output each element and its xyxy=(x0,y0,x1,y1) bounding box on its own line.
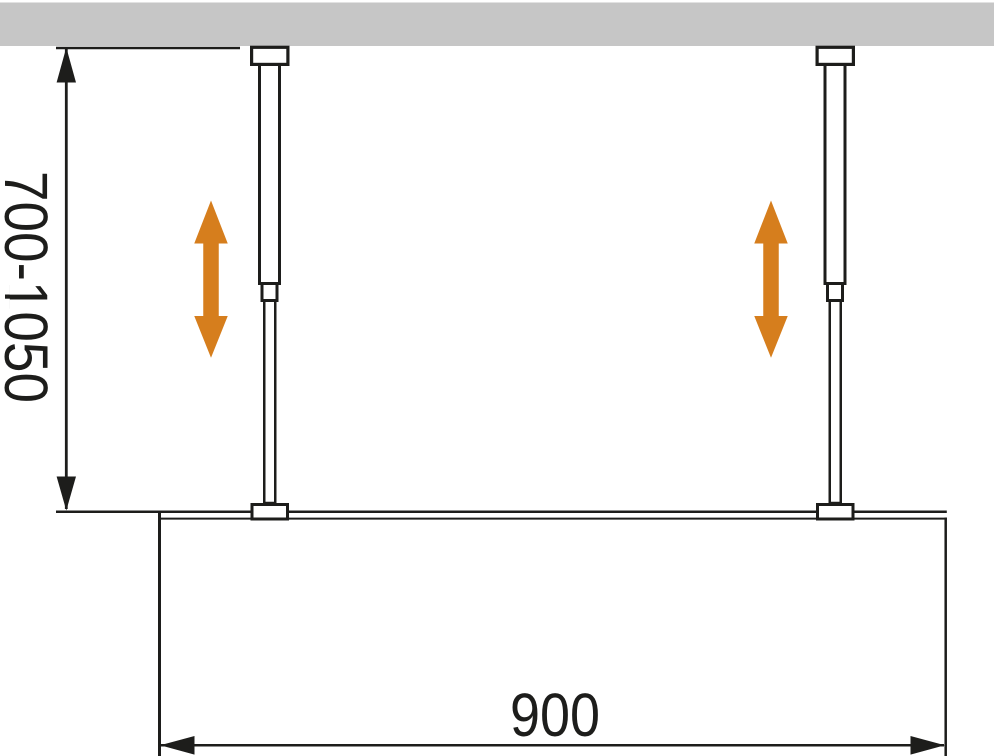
svg-text:900: 900 xyxy=(510,681,600,749)
